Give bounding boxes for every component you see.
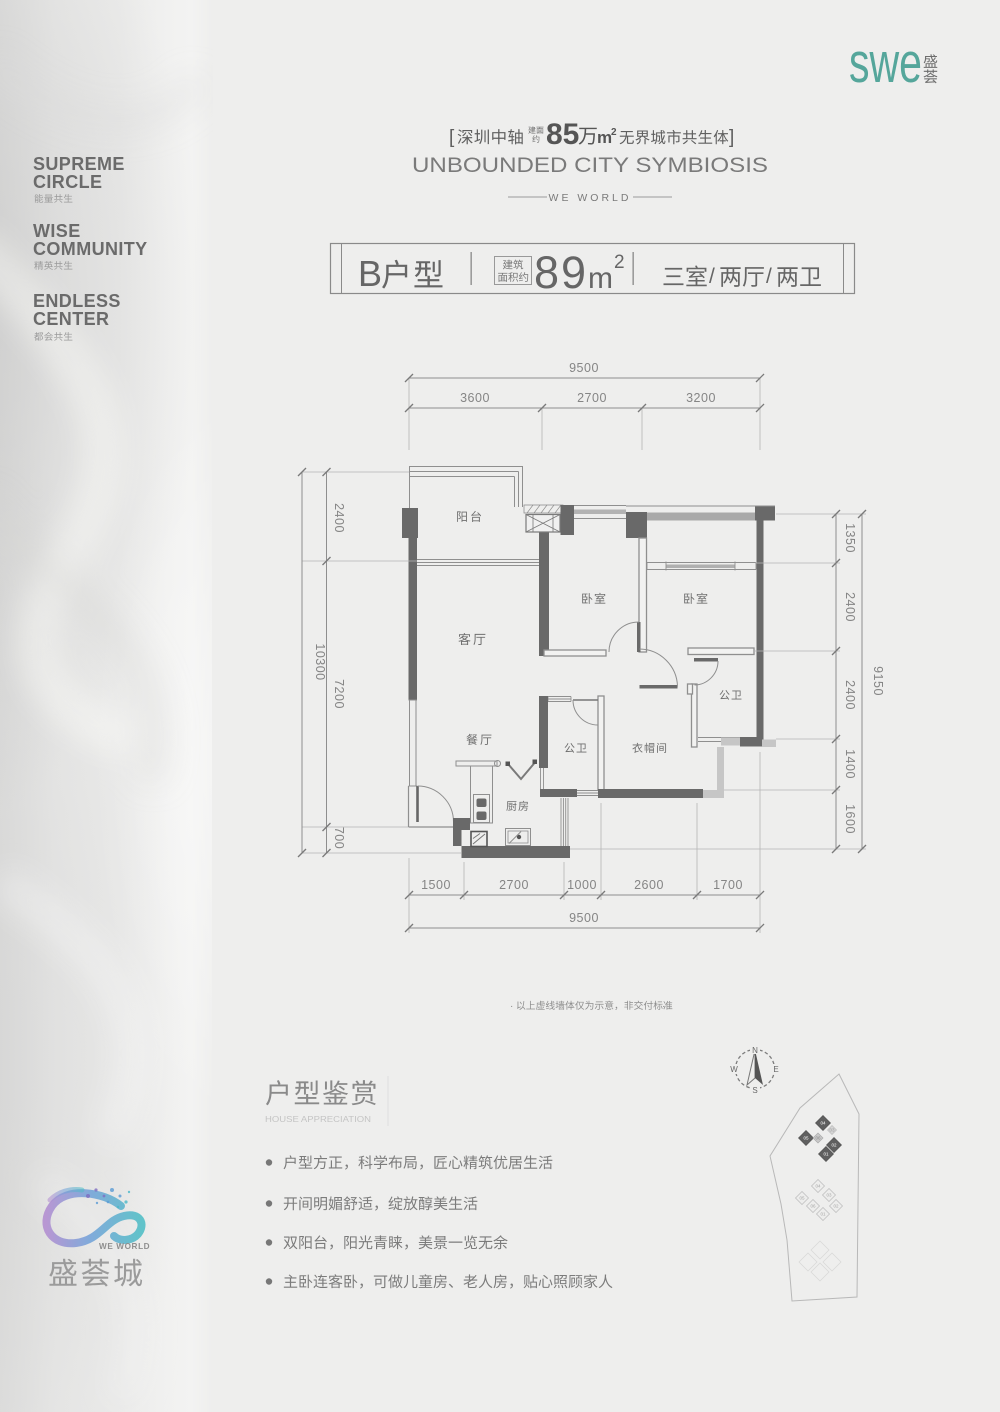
svg-text:WE WORLD: WE WORLD [549,192,632,204]
svg-text:06: 06 [810,1204,816,1209]
svg-text:04: 04 [815,1184,821,1189]
svg-text:m: m [597,128,612,147]
svg-text:3200: 3200 [686,391,716,405]
svg-text:·: · [510,1001,513,1012]
svg-text:05: 05 [799,1196,805,1201]
svg-text:2400: 2400 [332,503,346,533]
svg-text:S: S [752,1086,757,1095]
svg-text:1000: 1000 [567,878,597,892]
svg-text:700: 700 [332,827,346,849]
svg-text:01: 01 [820,1212,826,1217]
svg-text:B: B [358,253,382,294]
svg-text:WISE: WISE [33,221,81,241]
svg-text:2700: 2700 [499,878,529,892]
svg-text:3600: 3600 [460,391,490,405]
svg-text:CENTER: CENTER [33,309,109,329]
svg-text:2: 2 [611,127,617,138]
svg-text:SUPREME: SUPREME [33,154,125,174]
svg-text:2600: 2600 [634,878,664,892]
svg-text:05: 05 [803,1136,809,1141]
svg-text:m: m [588,262,613,295]
svg-text:85: 85 [546,118,579,151]
svg-text:]: ] [729,127,734,148]
svg-text:/: / [766,265,772,288]
svg-text:W: W [730,1065,738,1074]
svg-text:9500: 9500 [569,911,599,925]
svg-text:UNBOUNDED CITY SYMBIOSIS: UNBOUNDED CITY SYMBIOSIS [412,153,768,177]
svg-text:1700: 1700 [713,878,743,892]
svg-text:·: · [662,1001,665,1012]
svg-text:2: 2 [614,252,625,273]
svg-text:COMMUNITY: COMMUNITY [33,239,148,259]
svg-text:03: 03 [829,1128,835,1133]
svg-text:10300: 10300 [313,643,327,680]
svg-text:04: 04 [820,1121,826,1126]
svg-text:CIRCLE: CIRCLE [33,172,102,192]
svg-text:1600: 1600 [843,804,857,834]
svg-text:9500: 9500 [569,361,599,375]
svg-text:N: N [752,1046,758,1055]
svg-text:/: / [709,265,715,288]
svg-text:2400: 2400 [843,680,857,710]
svg-text:01: 01 [823,1152,829,1157]
svg-text:1400: 1400 [843,749,857,779]
svg-text:E: E [773,1065,778,1074]
svg-text:[: [ [449,127,455,148]
svg-text:1350: 1350 [843,523,857,553]
svg-text:89: 89 [534,247,588,298]
svg-text:WE WORLD: WE WORLD [99,1242,150,1251]
svg-text:ENDLESS: ENDLESS [33,291,121,311]
svg-text:9150: 9150 [871,666,885,696]
svg-text:2400: 2400 [843,592,857,622]
svg-text:02: 02 [833,1204,839,1209]
svg-text:1500: 1500 [421,878,451,892]
svg-text:06: 06 [815,1136,821,1141]
svg-text:HOUSE APPRECIATION: HOUSE APPRECIATION [265,1114,371,1124]
svg-text:02: 02 [831,1143,837,1148]
svg-text:2700: 2700 [577,391,607,405]
svg-text:03: 03 [826,1193,832,1198]
svg-text:swe: swe [849,31,922,95]
svg-text:7200: 7200 [332,679,346,709]
